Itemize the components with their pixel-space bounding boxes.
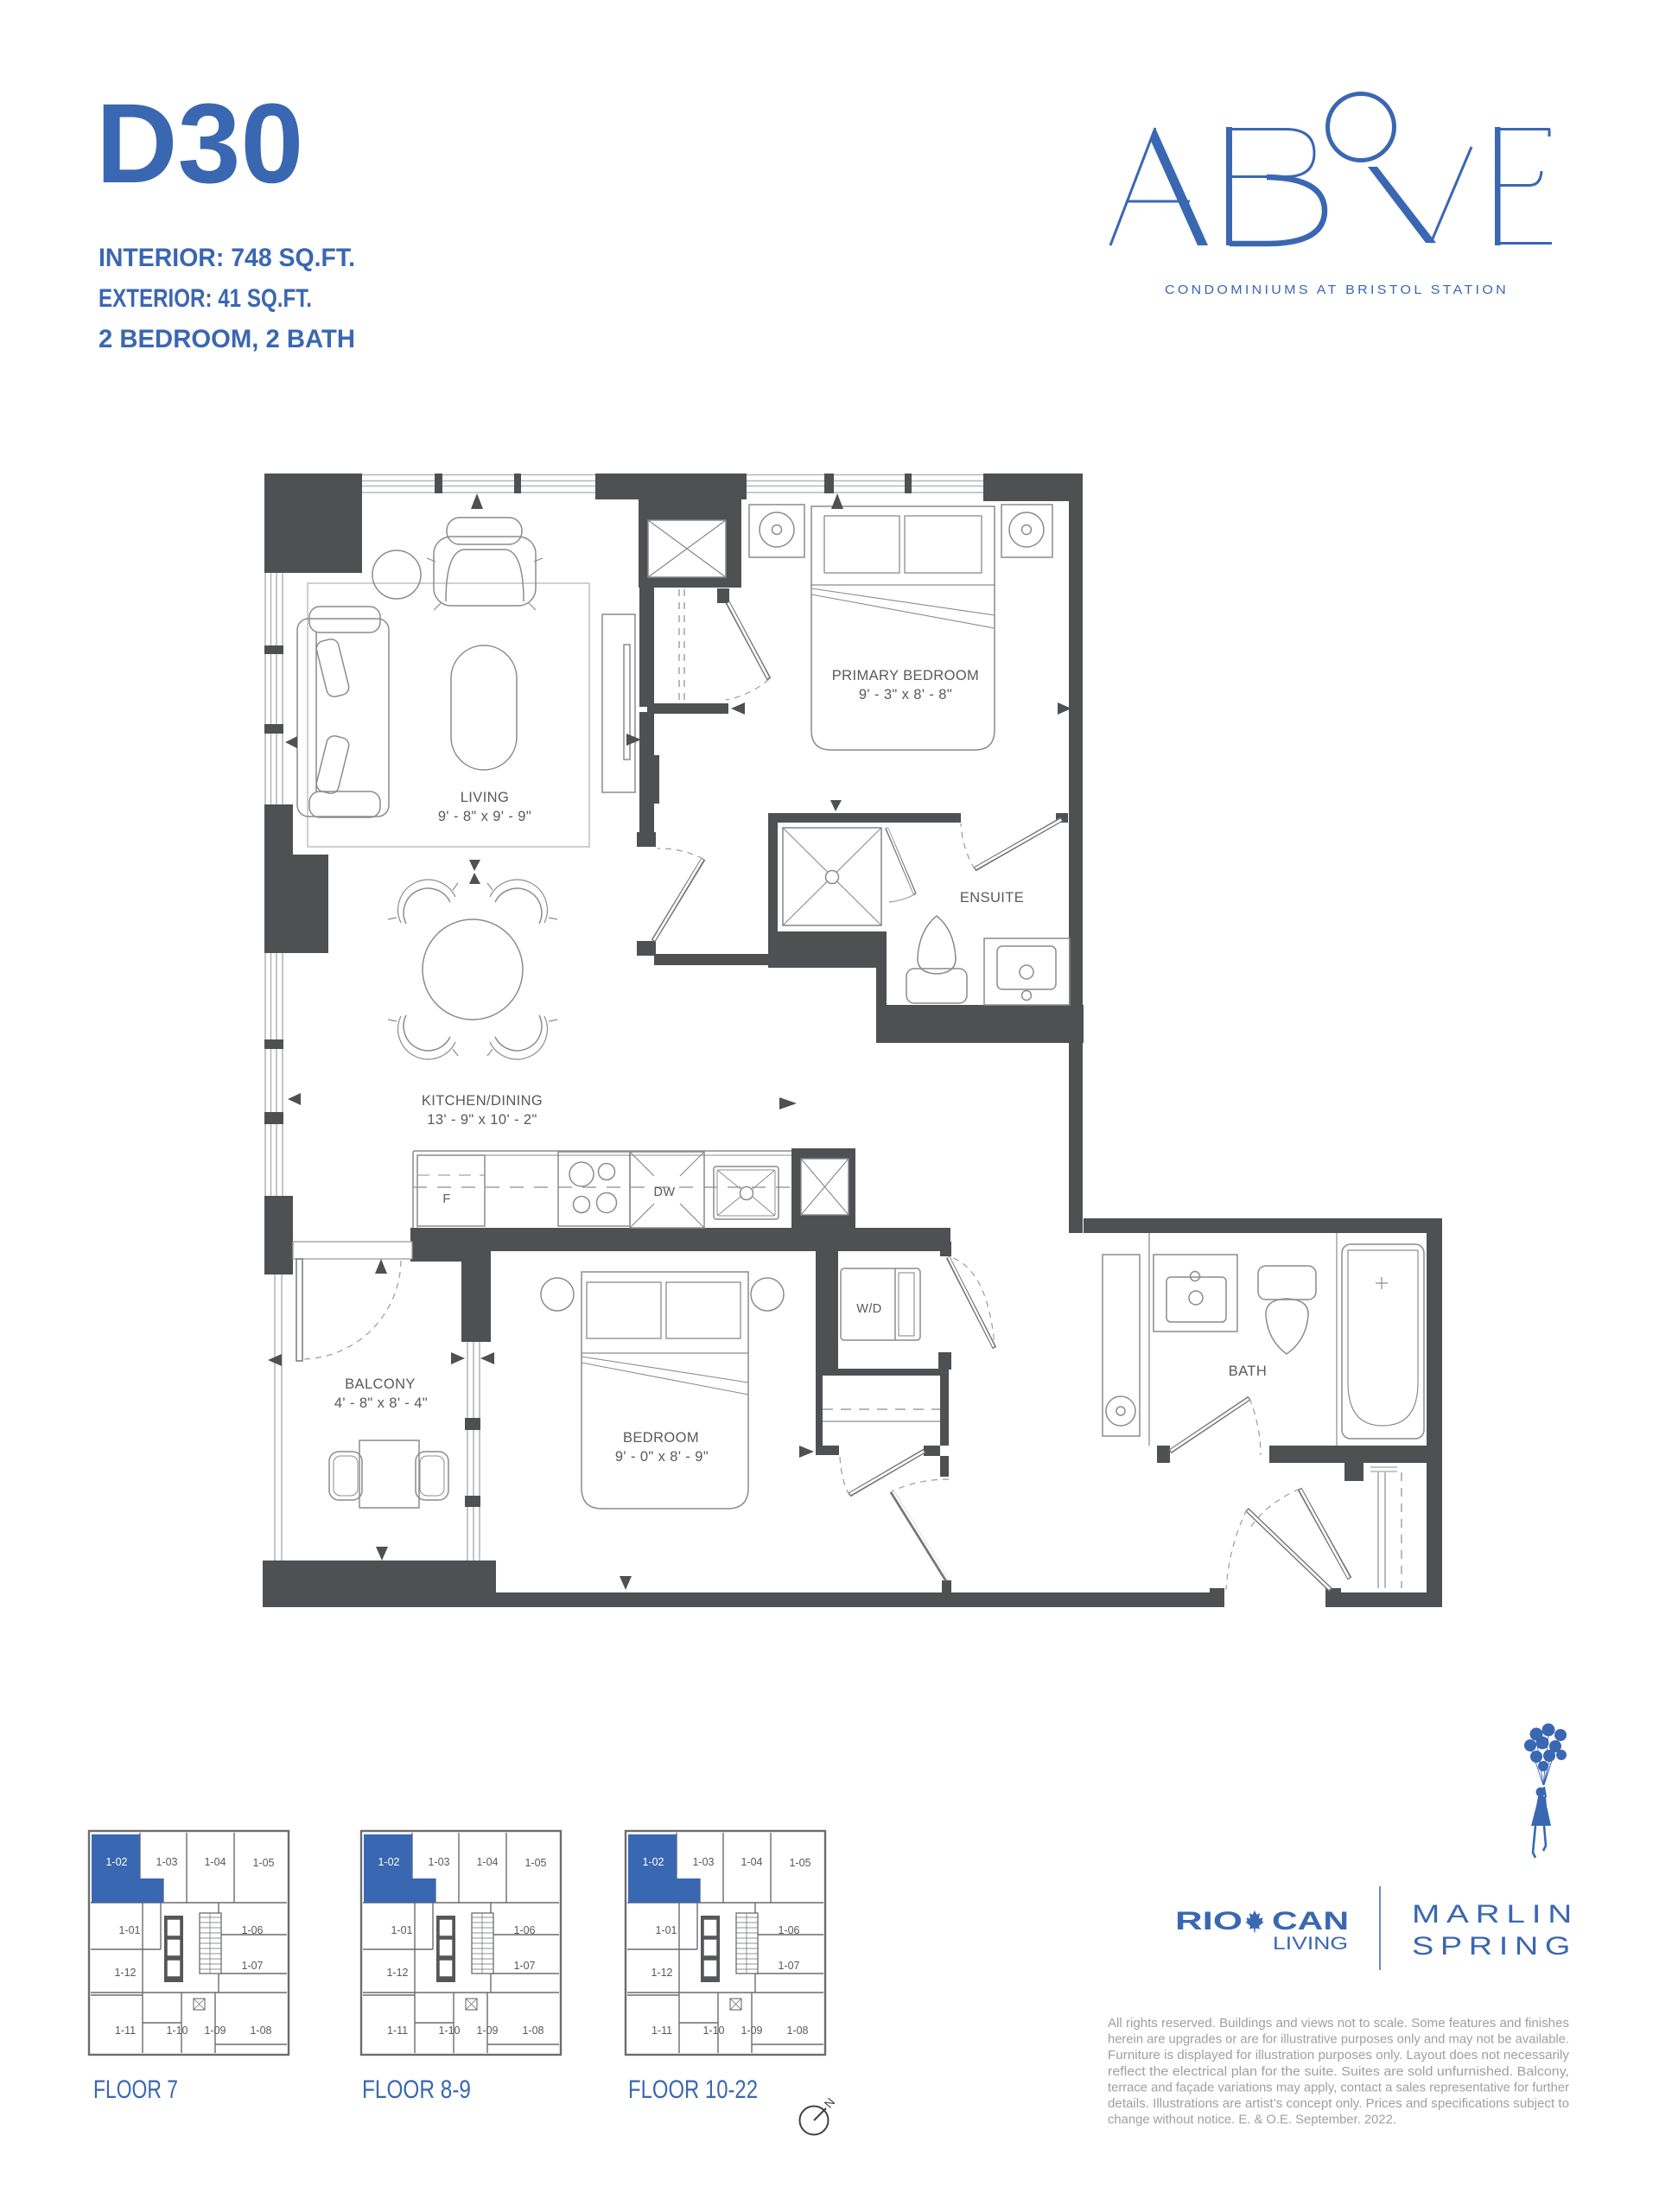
svg-text:LIVING: LIVING (461, 790, 510, 805)
svg-text:9' - 3" x 8' - 8": 9' - 3" x 8' - 8" (859, 687, 952, 702)
svg-text:KITCHEN/DINING: KITCHEN/DINING (422, 1093, 543, 1109)
svg-text:SPRING: SPRING (1412, 1932, 1577, 1961)
svg-text:BALCONY: BALCONY (345, 1376, 416, 1392)
svg-text:reflect the electrical plan fo: reflect the electrical plan for the suit… (1108, 2065, 1569, 2079)
svg-text:herein are upgrades or are for: herein are upgrades or are for illustrat… (1108, 2033, 1569, 2047)
svg-text:CAN: CAN (1272, 1907, 1349, 1935)
svg-text:DW: DW (654, 1185, 676, 1199)
svg-text:LIVING: LIVING (1273, 1934, 1348, 1954)
svg-text:9' - 0" x 8' - 9": 9' - 0" x 8' - 9" (615, 1449, 709, 1465)
svg-text:INTERIOR: 748 SQ.FT.: INTERIOR: 748 SQ.FT. (99, 244, 355, 272)
svg-text:2 BEDROOM, 2 BATH: 2 BEDROOM, 2 BATH (99, 325, 355, 353)
svg-text:CONDOMINIUMS AT BRISTOL STATIO: CONDOMINIUMS AT BRISTOL STATION (1165, 283, 1509, 297)
svg-text:Furniture is displayed for ill: Furniture is displayed for illustration … (1108, 2049, 1570, 2063)
svg-text:EXTERIOR: 41 SQ.FT.: EXTERIOR: 41 SQ.FT. (99, 284, 312, 313)
svg-text:terrace and façade variations: terrace and façade variations may apply,… (1108, 2081, 1569, 2094)
svg-text:All rights reserved. Buildings: All rights reserved. Buildings and views… (1108, 2017, 1569, 2031)
svg-text:MARLIN: MARLIN (1412, 1900, 1579, 1929)
svg-text:FLOOR 7: FLOOR 7 (93, 2075, 178, 2104)
svg-text:BATH: BATH (1229, 1363, 1267, 1379)
svg-text:13' - 9" x 10' - 2": 13' - 9" x 10' - 2" (427, 1112, 537, 1128)
svg-text:RIO: RIO (1175, 1907, 1243, 1935)
svg-text:4' - 8" x 8' - 4": 4' - 8" x 8' - 4" (334, 1395, 428, 1411)
svg-text:PRIMARY BEDROOM: PRIMARY BEDROOM (832, 668, 979, 683)
svg-text:ENSUITE: ENSUITE (960, 890, 1024, 906)
svg-text:details. Illustrations are art: details. Illustrations are artist’s conc… (1108, 2097, 1569, 2111)
svg-text:F: F (442, 1192, 450, 1206)
svg-text:D30: D30 (96, 79, 303, 207)
svg-text:BEDROOM: BEDROOM (623, 1430, 699, 1446)
svg-text:FLOOR 8-9: FLOOR 8-9 (362, 2075, 471, 2104)
svg-text:change without notice. E. & O.: change without notice. E. & O.E. Septemb… (1108, 2113, 1396, 2127)
svg-text:9' - 8" x 9' - 9": 9' - 8" x 9' - 9" (438, 809, 531, 824)
svg-text:N: N (822, 2095, 838, 2111)
svg-text:W/D: W/D (856, 1302, 881, 1316)
svg-text:FLOOR 10-22: FLOOR 10-22 (628, 2075, 758, 2104)
